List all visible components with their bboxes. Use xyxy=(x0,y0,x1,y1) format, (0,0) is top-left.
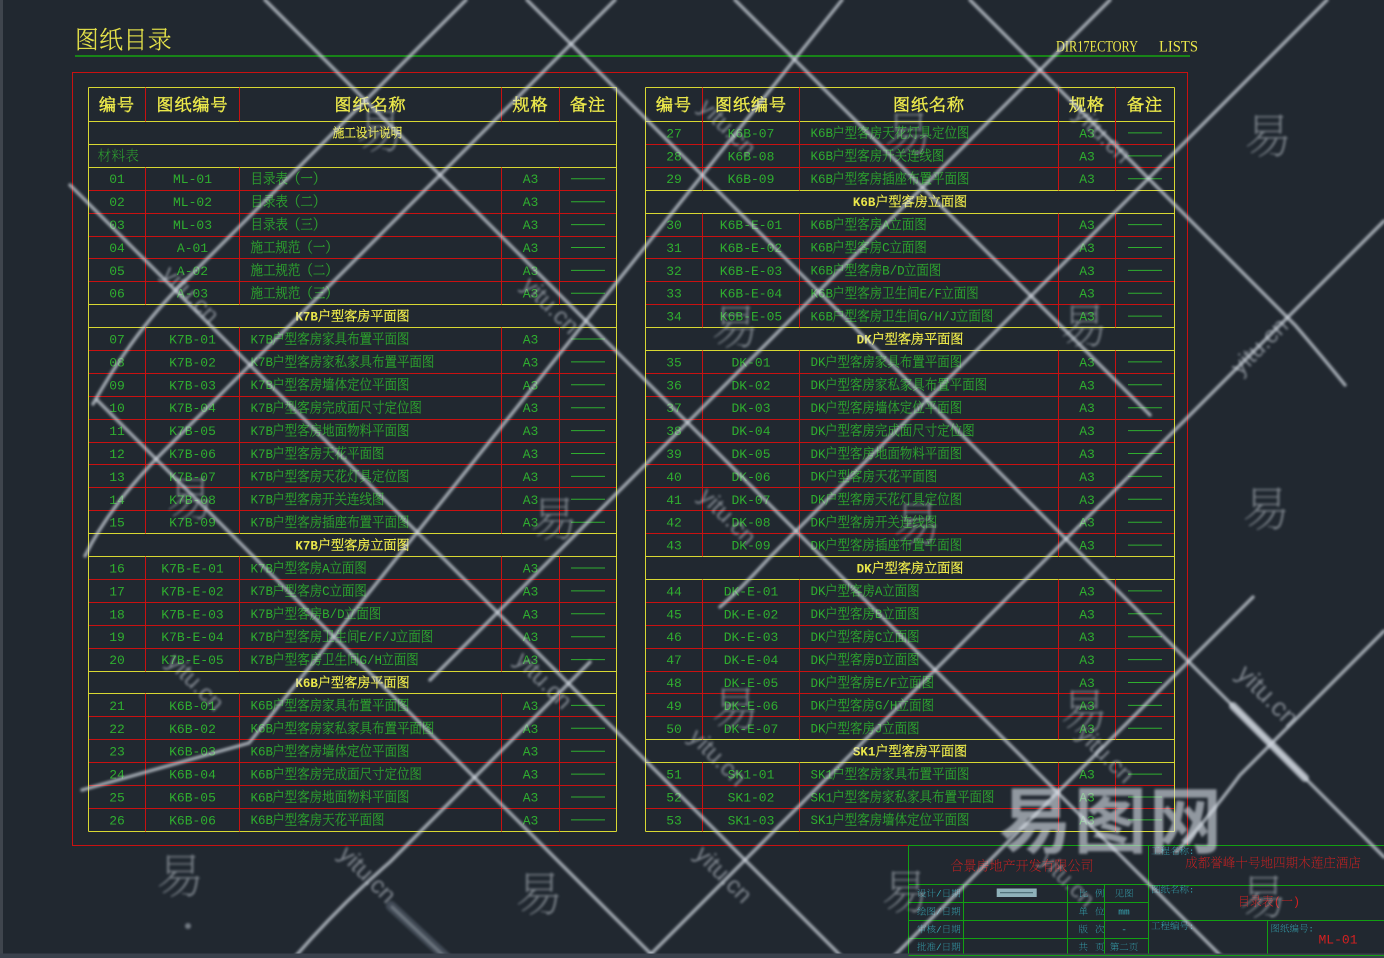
svg-text:K6B: K6B xyxy=(811,127,834,141)
svg-text:-: - xyxy=(1121,925,1127,936)
svg-text::: : xyxy=(1189,847,1194,857)
svg-text:K7B: K7B xyxy=(251,448,274,462)
svg-text:46: 46 xyxy=(666,630,682,645)
svg-text:ML-01: ML-01 xyxy=(1318,933,1357,948)
svg-text:E/F: E/F xyxy=(920,288,943,302)
svg-text:17: 17 xyxy=(109,584,125,599)
svg-text:39: 39 xyxy=(666,447,682,462)
svg-text:A3: A3 xyxy=(1079,539,1095,554)
svg-text:A3: A3 xyxy=(523,401,539,416)
svg-text:DK-E-07: DK-E-07 xyxy=(724,722,779,737)
svg-text:C: C xyxy=(322,585,330,599)
svg-text:DK: DK xyxy=(811,700,827,714)
svg-text:A3: A3 xyxy=(1079,218,1095,233)
svg-text:A3: A3 xyxy=(523,424,539,439)
svg-text:02: 02 xyxy=(109,195,125,210)
svg-text:06: 06 xyxy=(109,287,125,302)
svg-text:K7B: K7B xyxy=(251,608,274,622)
svg-text:K6B-E-04: K6B-E-04 xyxy=(720,287,783,302)
svg-text:A3: A3 xyxy=(1079,172,1095,187)
svg-text:DK: DK xyxy=(811,471,827,485)
svg-text::: : xyxy=(1189,886,1194,896)
svg-text:DK: DK xyxy=(811,448,827,462)
svg-text:/: / xyxy=(936,942,942,953)
svg-text::: : xyxy=(1309,925,1314,935)
svg-text:40: 40 xyxy=(666,470,682,485)
svg-text:42: 42 xyxy=(666,516,682,531)
svg-text:K7B: K7B xyxy=(251,425,274,439)
svg-text:K7B: K7B xyxy=(251,585,274,599)
svg-text:K7B: K7B xyxy=(295,539,318,553)
svg-text:48: 48 xyxy=(666,676,682,691)
svg-text:16: 16 xyxy=(109,562,125,577)
svg-text:K7B: K7B xyxy=(251,631,274,645)
svg-text:21: 21 xyxy=(109,699,125,714)
svg-text:DK-E-03: DK-E-03 xyxy=(724,630,779,645)
svg-text:A3: A3 xyxy=(523,218,539,233)
svg-text:K7B-E-02: K7B-E-02 xyxy=(161,584,223,599)
svg-text:B/D: B/D xyxy=(882,265,905,279)
svg-text:K7B-01: K7B-01 xyxy=(169,333,216,348)
svg-text:K6B: K6B xyxy=(251,768,274,782)
svg-text:D: D xyxy=(875,654,883,668)
svg-text:DK-03: DK-03 xyxy=(732,401,771,416)
svg-text:A3: A3 xyxy=(523,745,539,760)
svg-text:K6B-09: K6B-09 xyxy=(728,172,775,187)
svg-text:A3: A3 xyxy=(523,493,539,508)
svg-text:mm: mm xyxy=(1118,907,1130,918)
svg-text:SK1-03: SK1-03 xyxy=(728,813,775,828)
svg-text:A3: A3 xyxy=(1079,584,1095,599)
svg-text:DK-E-05: DK-E-05 xyxy=(724,676,779,691)
svg-text:K7B: K7B xyxy=(251,471,274,485)
svg-text:23: 23 xyxy=(109,745,125,760)
svg-text:09: 09 xyxy=(109,378,125,393)
svg-text:DK: DK xyxy=(811,425,827,439)
svg-text:A3: A3 xyxy=(523,791,539,806)
svg-text:ML-01: ML-01 xyxy=(173,172,212,187)
svg-text:K7B-09: K7B-09 xyxy=(169,516,216,531)
svg-text:K6B-04: K6B-04 xyxy=(169,768,216,783)
svg-text:K6B: K6B xyxy=(251,700,274,714)
svg-text:DK: DK xyxy=(857,562,873,576)
svg-text:51: 51 xyxy=(666,768,682,783)
svg-text:34: 34 xyxy=(666,310,682,325)
svg-text:43: 43 xyxy=(666,539,682,554)
svg-text:DK-02: DK-02 xyxy=(732,378,771,393)
svg-text:45: 45 xyxy=(666,607,682,622)
svg-text:A3: A3 xyxy=(1079,447,1095,462)
svg-text:A-01: A-01 xyxy=(177,241,208,256)
svg-text:47: 47 xyxy=(666,653,682,668)
svg-text:K7B-E-01: K7B-E-01 xyxy=(161,562,224,577)
svg-text:K7B-04: K7B-04 xyxy=(169,401,216,416)
svg-text:K6B: K6B xyxy=(853,196,876,210)
svg-text:50: 50 xyxy=(666,722,682,737)
svg-text:K6B: K6B xyxy=(811,265,834,279)
svg-text:K7B-06: K7B-06 xyxy=(169,447,216,462)
svg-text:A3: A3 xyxy=(523,241,539,256)
svg-text:K6B-02: K6B-02 xyxy=(169,722,216,737)
svg-text:K6B: K6B xyxy=(251,791,274,805)
svg-text:K6B: K6B xyxy=(811,242,834,256)
svg-text:DK-E-04: DK-E-04 xyxy=(724,653,779,668)
svg-text:G/H/J: G/H/J xyxy=(920,310,958,324)
svg-text:A3: A3 xyxy=(523,768,539,783)
svg-text:35: 35 xyxy=(666,355,682,370)
svg-text:ML-02: ML-02 xyxy=(173,195,212,210)
svg-text:K6B: K6B xyxy=(251,814,274,828)
svg-text:A3: A3 xyxy=(1079,149,1095,164)
svg-text:K6B: K6B xyxy=(811,173,834,187)
svg-text:A3: A3 xyxy=(1079,378,1095,393)
svg-text:A3: A3 xyxy=(1079,310,1095,325)
svg-text:K6B-05: K6B-05 xyxy=(169,791,216,806)
svg-text:A3: A3 xyxy=(523,699,539,714)
svg-text:53: 53 xyxy=(666,813,682,828)
svg-text:DK-E-02: DK-E-02 xyxy=(724,607,779,622)
svg-text:B/D: B/D xyxy=(322,608,345,622)
svg-text:DK: DK xyxy=(811,608,827,622)
svg-text:K7B-E-04: K7B-E-04 xyxy=(161,630,224,645)
svg-text:20: 20 xyxy=(109,653,125,668)
svg-text:DK: DK xyxy=(811,379,827,393)
svg-text:SK1-02: SK1-02 xyxy=(728,791,775,806)
svg-text:26: 26 xyxy=(109,813,125,828)
svg-text:A3: A3 xyxy=(1079,287,1095,302)
svg-text:K7B: K7B xyxy=(251,402,274,416)
svg-text:05: 05 xyxy=(109,264,125,279)
svg-text:SK1: SK1 xyxy=(811,814,834,828)
svg-text:K6B: K6B xyxy=(811,219,834,233)
svg-text:A3: A3 xyxy=(1079,401,1095,416)
svg-text:DK-05: DK-05 xyxy=(732,447,771,462)
svg-text:A: A xyxy=(875,585,883,599)
svg-text:K6B: K6B xyxy=(251,746,274,760)
svg-text:): ) xyxy=(1293,896,1300,910)
svg-text:49: 49 xyxy=(666,699,682,714)
svg-text:DK: DK xyxy=(811,677,827,691)
svg-text:15: 15 xyxy=(109,516,125,531)
svg-text:36: 36 xyxy=(666,378,682,393)
svg-text:LISTS: LISTS xyxy=(1159,39,1198,56)
svg-text:DK: DK xyxy=(811,356,827,370)
svg-text:E/F/J: E/F/J xyxy=(360,631,398,645)
svg-text:K7B-E-03: K7B-E-03 xyxy=(161,607,223,622)
svg-text:DK: DK xyxy=(811,654,827,668)
svg-text:A3: A3 xyxy=(523,607,539,622)
svg-text:A3: A3 xyxy=(1079,653,1095,668)
svg-text:A3: A3 xyxy=(1079,607,1095,622)
svg-text:33: 33 xyxy=(666,287,682,302)
svg-text:K6B-E-03: K6B-E-03 xyxy=(720,264,782,279)
svg-text:A3: A3 xyxy=(1079,493,1095,508)
svg-text:K7B-02: K7B-02 xyxy=(169,355,216,370)
svg-text:K7B: K7B xyxy=(251,654,274,668)
svg-text:ML-03: ML-03 xyxy=(173,218,212,233)
svg-text:/: / xyxy=(936,889,942,900)
svg-text:K7B: K7B xyxy=(251,517,274,531)
svg-text:K6B-E-02: K6B-E-02 xyxy=(720,241,782,256)
svg-text:18: 18 xyxy=(109,607,125,622)
svg-text:E/F: E/F xyxy=(875,677,898,691)
svg-text:32: 32 xyxy=(666,264,682,279)
svg-text:04: 04 xyxy=(109,241,125,256)
svg-text:A3: A3 xyxy=(1079,630,1095,645)
svg-text:A3: A3 xyxy=(523,355,539,370)
svg-text:07: 07 xyxy=(109,333,125,348)
svg-text:K6B: K6B xyxy=(811,150,834,164)
svg-text:K6B: K6B xyxy=(811,310,834,324)
svg-text:C: C xyxy=(882,242,890,256)
svg-text:DK: DK xyxy=(811,723,827,737)
svg-text:A3: A3 xyxy=(523,172,539,187)
svg-text:12: 12 xyxy=(109,447,125,462)
svg-text:A3: A3 xyxy=(523,333,539,348)
svg-text:19: 19 xyxy=(109,630,125,645)
svg-text:K7B-03: K7B-03 xyxy=(169,378,216,393)
svg-text:A3: A3 xyxy=(523,195,539,210)
svg-text:44: 44 xyxy=(666,584,682,599)
svg-text:DK: DK xyxy=(811,585,827,599)
svg-text:A3: A3 xyxy=(523,516,539,531)
svg-text:DK: DK xyxy=(811,402,827,416)
svg-text:29: 29 xyxy=(666,172,682,187)
svg-text:01: 01 xyxy=(109,172,125,187)
svg-text:DK-04: DK-04 xyxy=(732,424,771,439)
svg-text:22: 22 xyxy=(109,722,125,737)
svg-text:A3: A3 xyxy=(1079,676,1095,691)
svg-text:13: 13 xyxy=(109,470,125,485)
svg-text:A3: A3 xyxy=(1079,424,1095,439)
svg-text:A3: A3 xyxy=(523,447,539,462)
svg-text:K6B-06: K6B-06 xyxy=(169,813,216,828)
svg-text:31: 31 xyxy=(666,241,682,256)
svg-text:DK: DK xyxy=(811,517,827,531)
svg-text:A3: A3 xyxy=(1079,264,1095,279)
svg-text:A3: A3 xyxy=(1079,470,1095,485)
svg-text:30: 30 xyxy=(666,218,682,233)
svg-text:C: C xyxy=(875,631,883,645)
svg-text:41: 41 xyxy=(666,493,682,508)
svg-text:A3: A3 xyxy=(523,470,539,485)
svg-text:/: / xyxy=(936,925,942,936)
svg-text:25: 25 xyxy=(109,791,125,806)
svg-text:DK: DK xyxy=(811,631,827,645)
svg-text:K7B: K7B xyxy=(251,494,274,508)
svg-text:A: A xyxy=(322,562,330,576)
